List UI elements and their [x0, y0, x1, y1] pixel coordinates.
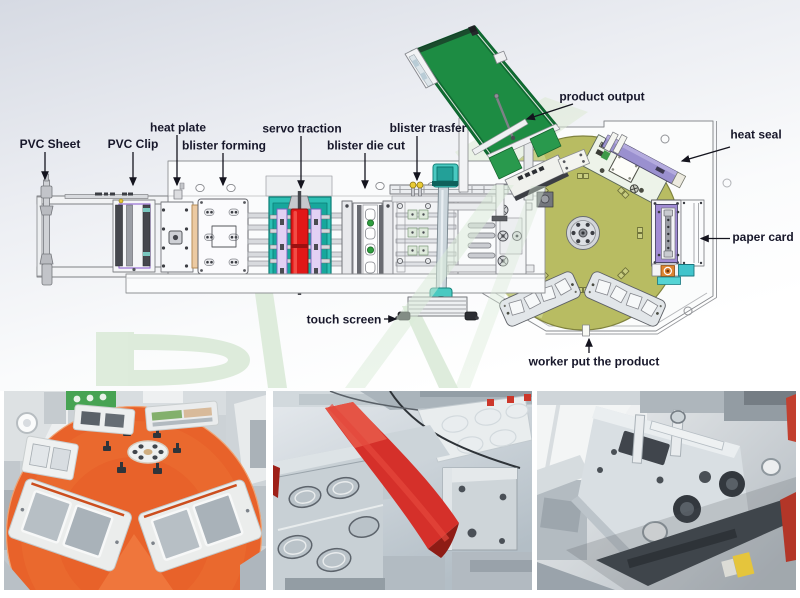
svg-text:servo traction: servo traction [262, 122, 341, 136]
svg-text:heat seal: heat seal [730, 128, 781, 142]
svg-text:blister trasfer: blister trasfer [390, 121, 467, 135]
svg-text:touch screen: touch screen [307, 313, 382, 327]
svg-text:blister forming: blister forming [182, 139, 266, 153]
svg-text:blister die cut: blister die cut [327, 139, 405, 153]
svg-text:worker put the product: worker put the product [528, 355, 660, 369]
svg-text:product output: product output [559, 90, 644, 104]
svg-text:PVC Sheet: PVC Sheet [20, 137, 81, 151]
svg-text:paper card: paper card [732, 230, 793, 244]
svg-text:PVC Clip: PVC Clip [108, 137, 159, 151]
svg-text:heat plate: heat plate [150, 121, 206, 135]
